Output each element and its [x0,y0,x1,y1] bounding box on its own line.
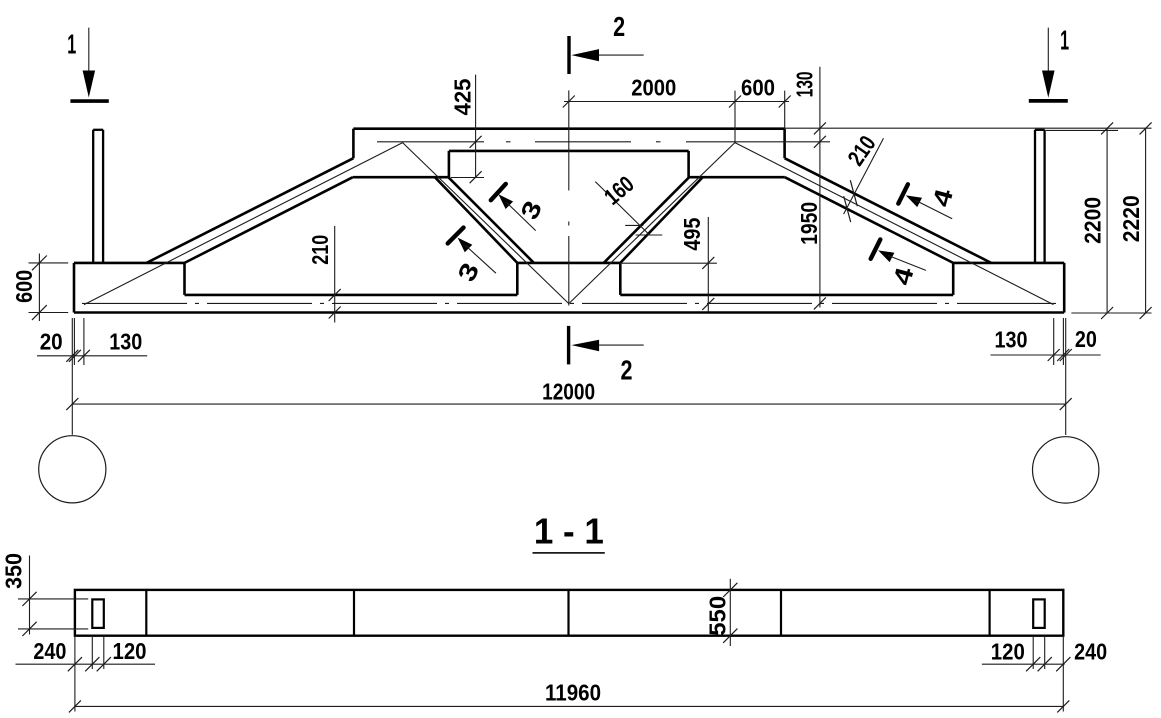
svg-text:2000: 2000 [631,75,676,101]
svg-text:600: 600 [741,75,775,101]
svg-text:495: 495 [679,217,705,250]
svg-text:11960: 11960 [545,679,601,705]
svg-text:550: 550 [704,596,730,636]
svg-text:130: 130 [995,327,1028,353]
svg-text:425: 425 [450,78,476,115]
svg-text:600: 600 [11,270,37,303]
svg-text:1950: 1950 [796,202,822,245]
svg-text:1: 1 [1060,24,1069,55]
svg-text:130: 130 [109,329,142,355]
svg-text:350: 350 [1,553,27,589]
svg-text:12000: 12000 [542,379,595,405]
svg-text:240: 240 [1074,638,1107,664]
svg-text:2: 2 [613,11,625,42]
svg-text:20: 20 [40,329,63,355]
svg-text:120: 120 [113,638,147,664]
svg-text:120: 120 [991,638,1025,664]
svg-text:20: 20 [1075,326,1097,352]
svg-text:2200: 2200 [1080,197,1106,244]
svg-text:2220: 2220 [1118,195,1144,242]
svg-text:130: 130 [791,71,817,97]
svg-text:1: 1 [67,28,76,59]
svg-text:2: 2 [621,355,633,386]
svg-text:210: 210 [307,235,333,265]
svg-text:1 - 1: 1 - 1 [534,510,604,551]
svg-text:240: 240 [33,638,66,664]
